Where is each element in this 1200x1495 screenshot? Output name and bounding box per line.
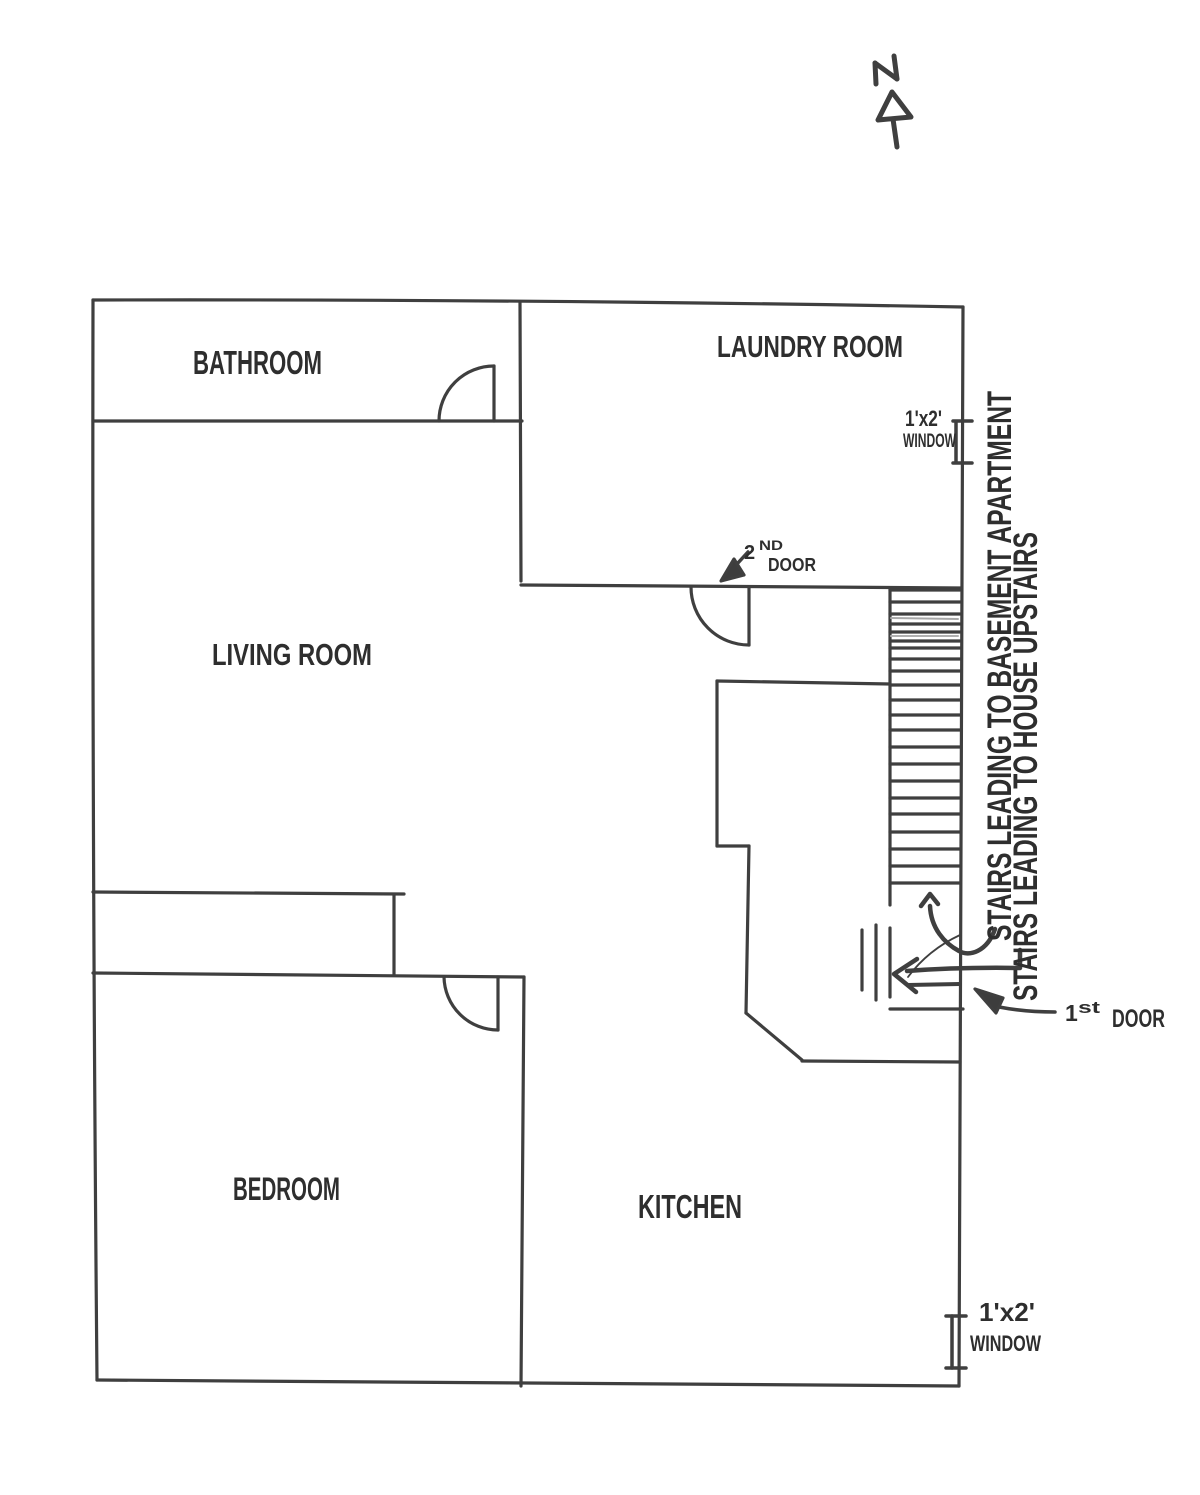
svg-text:KITCHEN: KITCHEN [638, 1188, 742, 1225]
svg-text:WINDOW: WINDOW [903, 431, 956, 452]
svg-text:BATHROOM: BATHROOM [193, 344, 322, 381]
svg-text:WINDOW: WINDOW [970, 1331, 1041, 1356]
svg-text:LIVING ROOM: LIVING ROOM [212, 637, 372, 672]
svg-text:st: st [1078, 998, 1100, 1017]
svg-text:STAIRS LEADING TO HOUSE UPSTAI: STAIRS LEADING TO HOUSE UPSTAIRS [1007, 532, 1045, 1001]
svg-text:LAUNDRY ROOM: LAUNDRY ROOM [717, 329, 903, 364]
svg-text:DOOR: DOOR [1112, 1005, 1165, 1033]
svg-text:DOOR: DOOR [768, 555, 816, 575]
svg-text:1'x2': 1'x2' [979, 1297, 1035, 1327]
svg-text:BEDROOM: BEDROOM [233, 1171, 340, 1207]
svg-text:2: 2 [744, 542, 755, 564]
svg-text:1: 1 [1065, 1000, 1078, 1026]
svg-text:ND: ND [759, 537, 783, 553]
svg-text:1'x2': 1'x2' [905, 406, 942, 431]
